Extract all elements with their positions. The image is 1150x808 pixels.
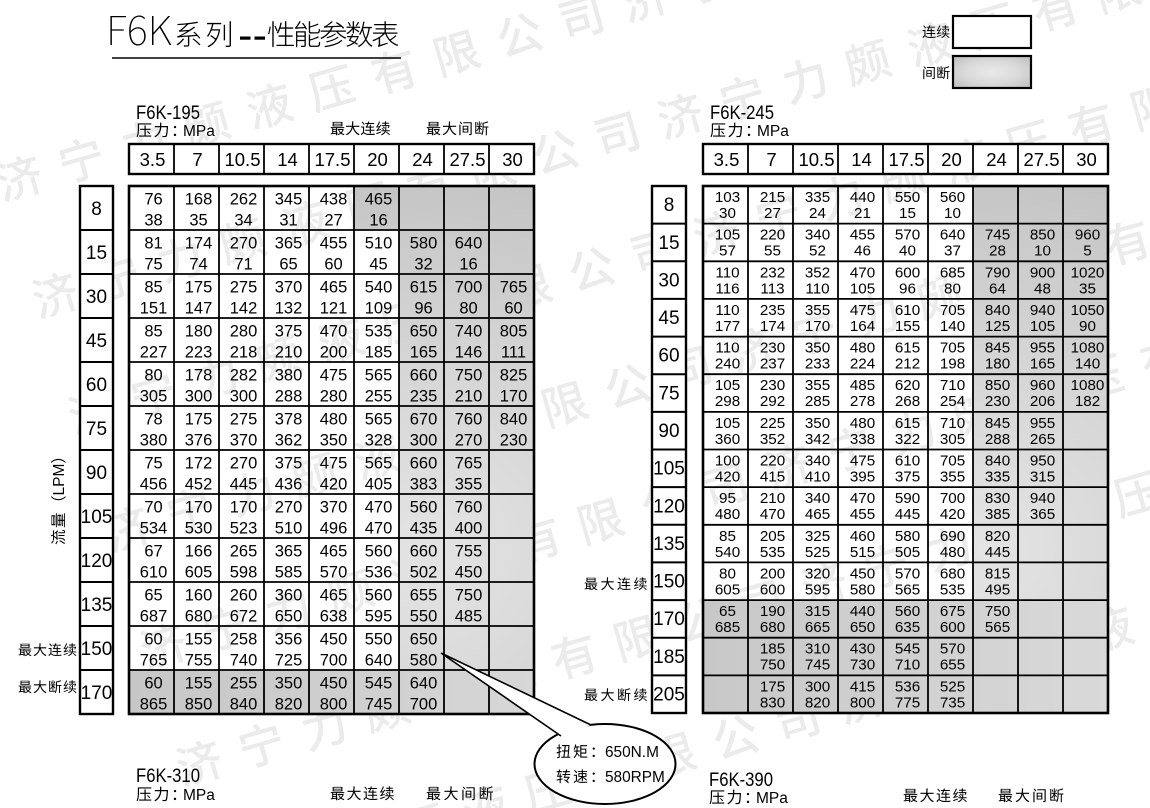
svg-text:175: 175: [185, 411, 213, 429]
svg-text:60: 60: [504, 300, 522, 318]
svg-text:5: 5: [1083, 243, 1091, 260]
svg-text:30: 30: [1076, 149, 1097, 170]
svg-text:177: 177: [715, 318, 740, 335]
svg-text:80: 80: [944, 280, 961, 297]
svg-text:638: 638: [320, 608, 348, 626]
svg-text:151: 151: [140, 300, 168, 318]
svg-text:510: 510: [275, 520, 303, 538]
svg-text:475: 475: [850, 302, 875, 319]
svg-text:360: 360: [275, 587, 303, 605]
svg-text:415: 415: [850, 678, 875, 695]
svg-text:210: 210: [760, 490, 785, 507]
svg-text:345: 345: [275, 191, 303, 209]
svg-text:590: 590: [895, 490, 920, 507]
svg-text:405: 405: [365, 476, 393, 494]
svg-text:15: 15: [86, 243, 107, 264]
svg-text:595: 595: [805, 581, 830, 598]
svg-text:580: 580: [895, 528, 920, 545]
svg-text:172: 172: [185, 455, 213, 473]
svg-text:70: 70: [144, 499, 162, 517]
svg-text:38: 38: [144, 212, 162, 230]
svg-text:660: 660: [410, 367, 438, 385]
svg-text:940: 940: [1030, 490, 1055, 507]
svg-text:14: 14: [277, 149, 298, 170]
svg-text:355: 355: [805, 377, 830, 394]
svg-text:565: 565: [365, 367, 393, 385]
svg-text:27: 27: [764, 205, 781, 222]
svg-text:300: 300: [410, 432, 438, 450]
svg-text:790: 790: [985, 264, 1010, 281]
svg-text:615: 615: [895, 415, 920, 432]
svg-text:525: 525: [805, 544, 830, 561]
svg-text:383: 383: [410, 476, 438, 494]
svg-text:745: 745: [985, 227, 1010, 244]
svg-text:71: 71: [234, 256, 252, 274]
svg-text:105: 105: [715, 377, 740, 394]
svg-text:200: 200: [760, 565, 785, 582]
svg-text:455: 455: [850, 227, 875, 244]
svg-text:385: 385: [985, 506, 1010, 523]
svg-text:615: 615: [410, 279, 438, 297]
svg-text:315: 315: [1030, 469, 1055, 486]
svg-text:78: 78: [144, 411, 162, 429]
svg-text:100: 100: [715, 453, 740, 470]
svg-text:300: 300: [230, 388, 258, 406]
svg-text:96: 96: [414, 300, 432, 318]
svg-text:165: 165: [410, 344, 438, 362]
svg-text:120: 120: [653, 496, 685, 517]
svg-text:10: 10: [1034, 243, 1051, 260]
svg-text:350: 350: [320, 432, 348, 450]
svg-text:305: 305: [140, 388, 168, 406]
svg-text:450: 450: [320, 675, 348, 693]
svg-text:75: 75: [144, 455, 162, 473]
svg-text:MPa: MPa: [183, 123, 215, 140]
svg-text:450: 450: [850, 565, 875, 582]
svg-text:103: 103: [715, 189, 740, 206]
svg-text:164: 164: [850, 318, 875, 335]
svg-text:300: 300: [185, 388, 213, 406]
svg-text:510: 510: [365, 235, 393, 253]
svg-text:672: 672: [230, 608, 258, 626]
svg-text:96: 96: [899, 280, 916, 297]
svg-text:110: 110: [715, 264, 739, 281]
svg-text:365: 365: [1030, 506, 1055, 523]
svg-text:3.5: 3.5: [714, 149, 740, 170]
svg-text:223: 223: [185, 344, 213, 362]
svg-text:280: 280: [230, 323, 258, 341]
svg-text:121: 121: [320, 300, 348, 318]
svg-text:535: 535: [760, 544, 785, 561]
svg-text:580RPM: 580RPM: [605, 769, 665, 786]
svg-text:178: 178: [185, 367, 213, 385]
svg-text:605: 605: [715, 581, 740, 598]
svg-text:310: 310: [805, 641, 830, 658]
svg-text:225: 225: [760, 415, 785, 432]
svg-text:585: 585: [275, 564, 303, 582]
svg-text:470: 470: [760, 506, 785, 523]
svg-text:35: 35: [1079, 280, 1096, 297]
svg-text:523: 523: [230, 520, 258, 538]
svg-text:560: 560: [940, 189, 965, 206]
svg-text:496: 496: [320, 520, 348, 538]
svg-text:105: 105: [850, 280, 875, 297]
svg-text:37: 37: [944, 243, 961, 260]
svg-text:530: 530: [185, 520, 213, 538]
svg-text:465: 465: [320, 587, 348, 605]
svg-text:825: 825: [500, 367, 528, 385]
svg-text:470: 470: [365, 520, 393, 538]
svg-text:105: 105: [715, 227, 740, 244]
svg-text:705: 705: [940, 340, 965, 357]
svg-text:205: 205: [760, 528, 785, 545]
svg-text:410: 410: [805, 469, 830, 486]
svg-text:21: 21: [854, 205, 871, 222]
svg-text:105: 105: [1030, 318, 1055, 335]
svg-text:745: 745: [805, 657, 830, 674]
svg-text:255: 255: [365, 388, 393, 406]
svg-text:1080: 1080: [1071, 340, 1105, 357]
svg-text:185: 185: [653, 647, 685, 668]
svg-text:10: 10: [944, 205, 961, 222]
svg-text:24: 24: [809, 205, 826, 222]
svg-text:10.5: 10.5: [798, 149, 834, 170]
svg-text:545: 545: [365, 675, 393, 693]
svg-text:595: 595: [365, 608, 393, 626]
svg-text:655: 655: [410, 587, 438, 605]
svg-text:292: 292: [760, 393, 785, 410]
svg-text:190: 190: [760, 603, 785, 620]
svg-text:150: 150: [653, 572, 685, 593]
svg-text:535: 535: [940, 581, 965, 598]
svg-text:95: 95: [719, 490, 736, 507]
svg-text:233: 233: [805, 356, 830, 373]
svg-text:328: 328: [365, 432, 393, 450]
svg-text:76: 76: [144, 191, 162, 209]
svg-text:3.5: 3.5: [140, 149, 166, 170]
svg-text:46: 46: [854, 243, 871, 260]
svg-text:470: 470: [320, 323, 348, 341]
svg-text:365: 365: [275, 235, 303, 253]
svg-text:17.5: 17.5: [314, 149, 350, 170]
svg-text:465: 465: [320, 279, 348, 297]
svg-text:540: 540: [715, 544, 740, 561]
svg-text:80: 80: [144, 367, 162, 385]
svg-text:850: 850: [985, 377, 1010, 394]
svg-text:170: 170: [500, 388, 528, 406]
svg-text:570: 570: [940, 641, 965, 658]
svg-text:685: 685: [940, 264, 965, 281]
svg-text:775: 775: [895, 694, 920, 711]
svg-text:300: 300: [805, 678, 830, 695]
svg-text:30: 30: [86, 287, 107, 308]
svg-text:235: 235: [410, 388, 438, 406]
svg-text:64: 64: [989, 280, 1006, 297]
svg-text:262: 262: [230, 191, 258, 209]
svg-text:170: 170: [81, 683, 113, 704]
svg-text:820: 820: [985, 528, 1010, 545]
svg-text:220: 220: [760, 453, 785, 470]
svg-text:17.5: 17.5: [888, 149, 924, 170]
svg-text:210: 210: [275, 344, 303, 362]
svg-text:20: 20: [367, 149, 388, 170]
svg-text:960: 960: [1030, 377, 1055, 394]
svg-text:365: 365: [275, 543, 303, 561]
svg-text:170: 170: [230, 499, 258, 517]
svg-text:265: 265: [230, 543, 258, 561]
svg-text:57: 57: [719, 243, 736, 260]
svg-text:350: 350: [275, 675, 303, 693]
svg-text:750: 750: [985, 603, 1010, 620]
svg-text:335: 335: [805, 189, 830, 206]
svg-text:640: 640: [410, 675, 438, 693]
svg-text:505: 505: [895, 544, 920, 561]
svg-text:140: 140: [940, 318, 965, 335]
svg-text:175: 175: [185, 279, 213, 297]
svg-text:24: 24: [986, 149, 1007, 170]
svg-text:620: 620: [895, 377, 920, 394]
svg-text:212: 212: [895, 356, 920, 373]
svg-text:940: 940: [1030, 302, 1055, 319]
svg-text:350: 350: [805, 340, 830, 357]
svg-text:465: 465: [805, 506, 830, 523]
svg-text:146: 146: [455, 344, 483, 362]
svg-text:170: 170: [653, 609, 685, 630]
svg-text:1020: 1020: [1071, 264, 1105, 281]
svg-text:135: 135: [81, 595, 113, 616]
svg-text:65: 65: [719, 603, 736, 620]
svg-text:635: 635: [895, 619, 920, 636]
svg-text:90: 90: [1079, 318, 1096, 335]
svg-text:67: 67: [144, 543, 162, 561]
svg-text:27: 27: [324, 212, 342, 230]
svg-text:81: 81: [144, 235, 162, 253]
svg-text:470: 470: [850, 264, 875, 281]
svg-text:840: 840: [500, 411, 528, 429]
svg-text:370: 370: [320, 499, 348, 517]
svg-text:14: 14: [851, 149, 872, 170]
svg-text:765: 765: [500, 279, 528, 297]
svg-text:450: 450: [320, 631, 348, 649]
svg-text:600: 600: [760, 581, 785, 598]
svg-text:355: 355: [805, 302, 830, 319]
svg-text:665: 665: [805, 619, 830, 636]
svg-text:565: 565: [365, 411, 393, 429]
svg-text:180: 180: [185, 323, 213, 341]
svg-text:258: 258: [230, 631, 258, 649]
svg-text:440: 440: [850, 189, 875, 206]
svg-text:215: 215: [760, 189, 785, 206]
svg-text:470: 470: [365, 499, 393, 517]
svg-text:355: 355: [455, 476, 483, 494]
svg-text:113: 113: [760, 280, 784, 297]
svg-text:760: 760: [455, 411, 483, 429]
svg-text:570: 570: [895, 227, 920, 244]
svg-text:800: 800: [850, 694, 875, 711]
svg-text:670: 670: [410, 411, 438, 429]
svg-text:60: 60: [86, 375, 107, 396]
svg-text:325: 325: [805, 528, 830, 545]
svg-text:710: 710: [895, 657, 920, 674]
svg-text:（LPM）: （LPM）: [51, 448, 68, 511]
svg-text:80: 80: [719, 565, 736, 582]
svg-text:395: 395: [850, 469, 875, 486]
svg-text:322: 322: [895, 431, 920, 448]
svg-text:640: 640: [940, 227, 965, 244]
svg-text:475: 475: [850, 453, 875, 470]
svg-text:31: 31: [279, 212, 297, 230]
svg-text:820: 820: [805, 694, 830, 711]
svg-text:598: 598: [230, 564, 258, 582]
svg-text:460: 460: [850, 528, 875, 545]
svg-text:75: 75: [144, 256, 162, 274]
svg-text:200: 200: [320, 344, 348, 362]
svg-text:845: 845: [985, 415, 1010, 432]
svg-text:480: 480: [320, 411, 348, 429]
svg-text:640: 640: [365, 652, 393, 670]
svg-text:90: 90: [86, 463, 107, 484]
svg-text:470: 470: [850, 490, 875, 507]
svg-text:502: 502: [410, 564, 438, 582]
svg-text:27.5: 27.5: [1023, 149, 1059, 170]
svg-text:174: 174: [760, 318, 785, 335]
svg-text:565: 565: [985, 619, 1010, 636]
svg-text:660: 660: [410, 455, 438, 473]
svg-text:420: 420: [320, 476, 348, 494]
svg-text:270: 270: [230, 235, 258, 253]
svg-text:352: 352: [760, 431, 785, 448]
svg-text:165: 165: [1030, 356, 1055, 373]
svg-text:840: 840: [985, 453, 1010, 470]
svg-text:109: 109: [365, 300, 393, 318]
svg-text:150: 150: [81, 639, 113, 660]
svg-text:45: 45: [86, 331, 107, 352]
svg-text:270: 270: [275, 499, 303, 517]
svg-text:280: 280: [320, 388, 348, 406]
svg-text:350: 350: [805, 415, 830, 432]
svg-text:170: 170: [805, 318, 830, 335]
svg-text:650: 650: [850, 619, 875, 636]
svg-text:230: 230: [500, 432, 528, 450]
svg-text:687: 687: [140, 608, 168, 626]
svg-text:600: 600: [895, 264, 920, 281]
svg-text:30: 30: [502, 149, 523, 170]
svg-text:355: 355: [940, 469, 965, 486]
svg-text:232: 232: [760, 264, 785, 281]
svg-text:224: 224: [850, 356, 875, 373]
svg-text:475: 475: [320, 367, 348, 385]
svg-text:480: 480: [940, 544, 965, 561]
svg-text:700: 700: [410, 696, 438, 714]
svg-text:805: 805: [500, 323, 528, 341]
svg-text:340: 340: [805, 453, 830, 470]
svg-text:480: 480: [850, 415, 875, 432]
svg-text:610: 610: [895, 302, 920, 319]
svg-text:760: 760: [455, 499, 483, 517]
svg-text:710: 710: [940, 415, 965, 432]
svg-text:52: 52: [809, 243, 826, 260]
svg-text:680: 680: [760, 619, 785, 636]
svg-text:7: 7: [766, 149, 776, 170]
svg-text:960: 960: [1075, 227, 1100, 244]
svg-text:174: 174: [185, 235, 213, 253]
svg-text:950: 950: [1030, 453, 1055, 470]
svg-text:F6K-195: F6K-195: [136, 102, 200, 124]
svg-text:580: 580: [410, 235, 438, 253]
svg-text:65: 65: [144, 587, 162, 605]
svg-text:536: 536: [895, 678, 920, 695]
svg-text:370: 370: [230, 432, 258, 450]
svg-text:480: 480: [715, 506, 740, 523]
svg-text:830: 830: [760, 694, 785, 711]
svg-text:16: 16: [369, 212, 387, 230]
svg-text:60: 60: [324, 256, 342, 274]
svg-text:580: 580: [410, 652, 438, 670]
svg-text:MPa: MPa: [757, 123, 789, 140]
svg-text:380: 380: [275, 367, 303, 385]
svg-text:570: 570: [895, 565, 920, 582]
svg-text:182: 182: [1075, 393, 1100, 410]
svg-text:650: 650: [275, 608, 303, 626]
svg-text:75: 75: [86, 419, 107, 440]
svg-text:60: 60: [144, 631, 162, 649]
svg-text:650N.M: 650N.M: [605, 744, 659, 761]
svg-text:110: 110: [715, 340, 739, 357]
svg-text:116: 116: [715, 280, 739, 297]
svg-text:525: 525: [940, 678, 965, 695]
svg-text:740: 740: [230, 652, 258, 670]
svg-text:110: 110: [805, 280, 829, 297]
svg-text:560: 560: [365, 543, 393, 561]
svg-text:755: 755: [455, 543, 483, 561]
svg-text:10.5: 10.5: [224, 149, 260, 170]
svg-text:438: 438: [320, 191, 348, 209]
svg-text:900: 900: [1030, 264, 1055, 281]
svg-text:65: 65: [279, 256, 297, 274]
svg-text:730: 730: [850, 657, 875, 674]
svg-text:420: 420: [715, 469, 740, 486]
svg-text:288: 288: [275, 388, 303, 406]
svg-text:820: 820: [275, 696, 303, 714]
svg-text:955: 955: [1030, 415, 1055, 432]
svg-text:352: 352: [805, 264, 830, 281]
svg-text:450: 450: [455, 564, 483, 582]
svg-text:455: 455: [320, 235, 348, 253]
svg-text:445: 445: [230, 476, 258, 494]
svg-text:475: 475: [320, 455, 348, 473]
svg-text:342: 342: [805, 431, 830, 448]
svg-text:198: 198: [940, 356, 965, 373]
svg-text:206: 206: [1030, 393, 1055, 410]
svg-text:560: 560: [365, 587, 393, 605]
svg-text:60: 60: [658, 346, 679, 367]
svg-text:185: 185: [760, 641, 785, 658]
svg-text:111: 111: [501, 344, 526, 362]
svg-text:85: 85: [144, 323, 162, 341]
svg-text:376: 376: [185, 432, 213, 450]
svg-text:40: 40: [899, 243, 916, 260]
svg-text:1080: 1080: [1071, 377, 1105, 394]
svg-text:90: 90: [658, 421, 679, 442]
svg-text:650: 650: [410, 323, 438, 341]
svg-text:282: 282: [230, 367, 258, 385]
svg-text:515: 515: [850, 544, 875, 561]
svg-text:570: 570: [320, 564, 348, 582]
svg-text:700: 700: [940, 490, 965, 507]
svg-text:298: 298: [715, 393, 740, 410]
svg-text:550: 550: [895, 189, 920, 206]
svg-text:74: 74: [189, 256, 207, 274]
